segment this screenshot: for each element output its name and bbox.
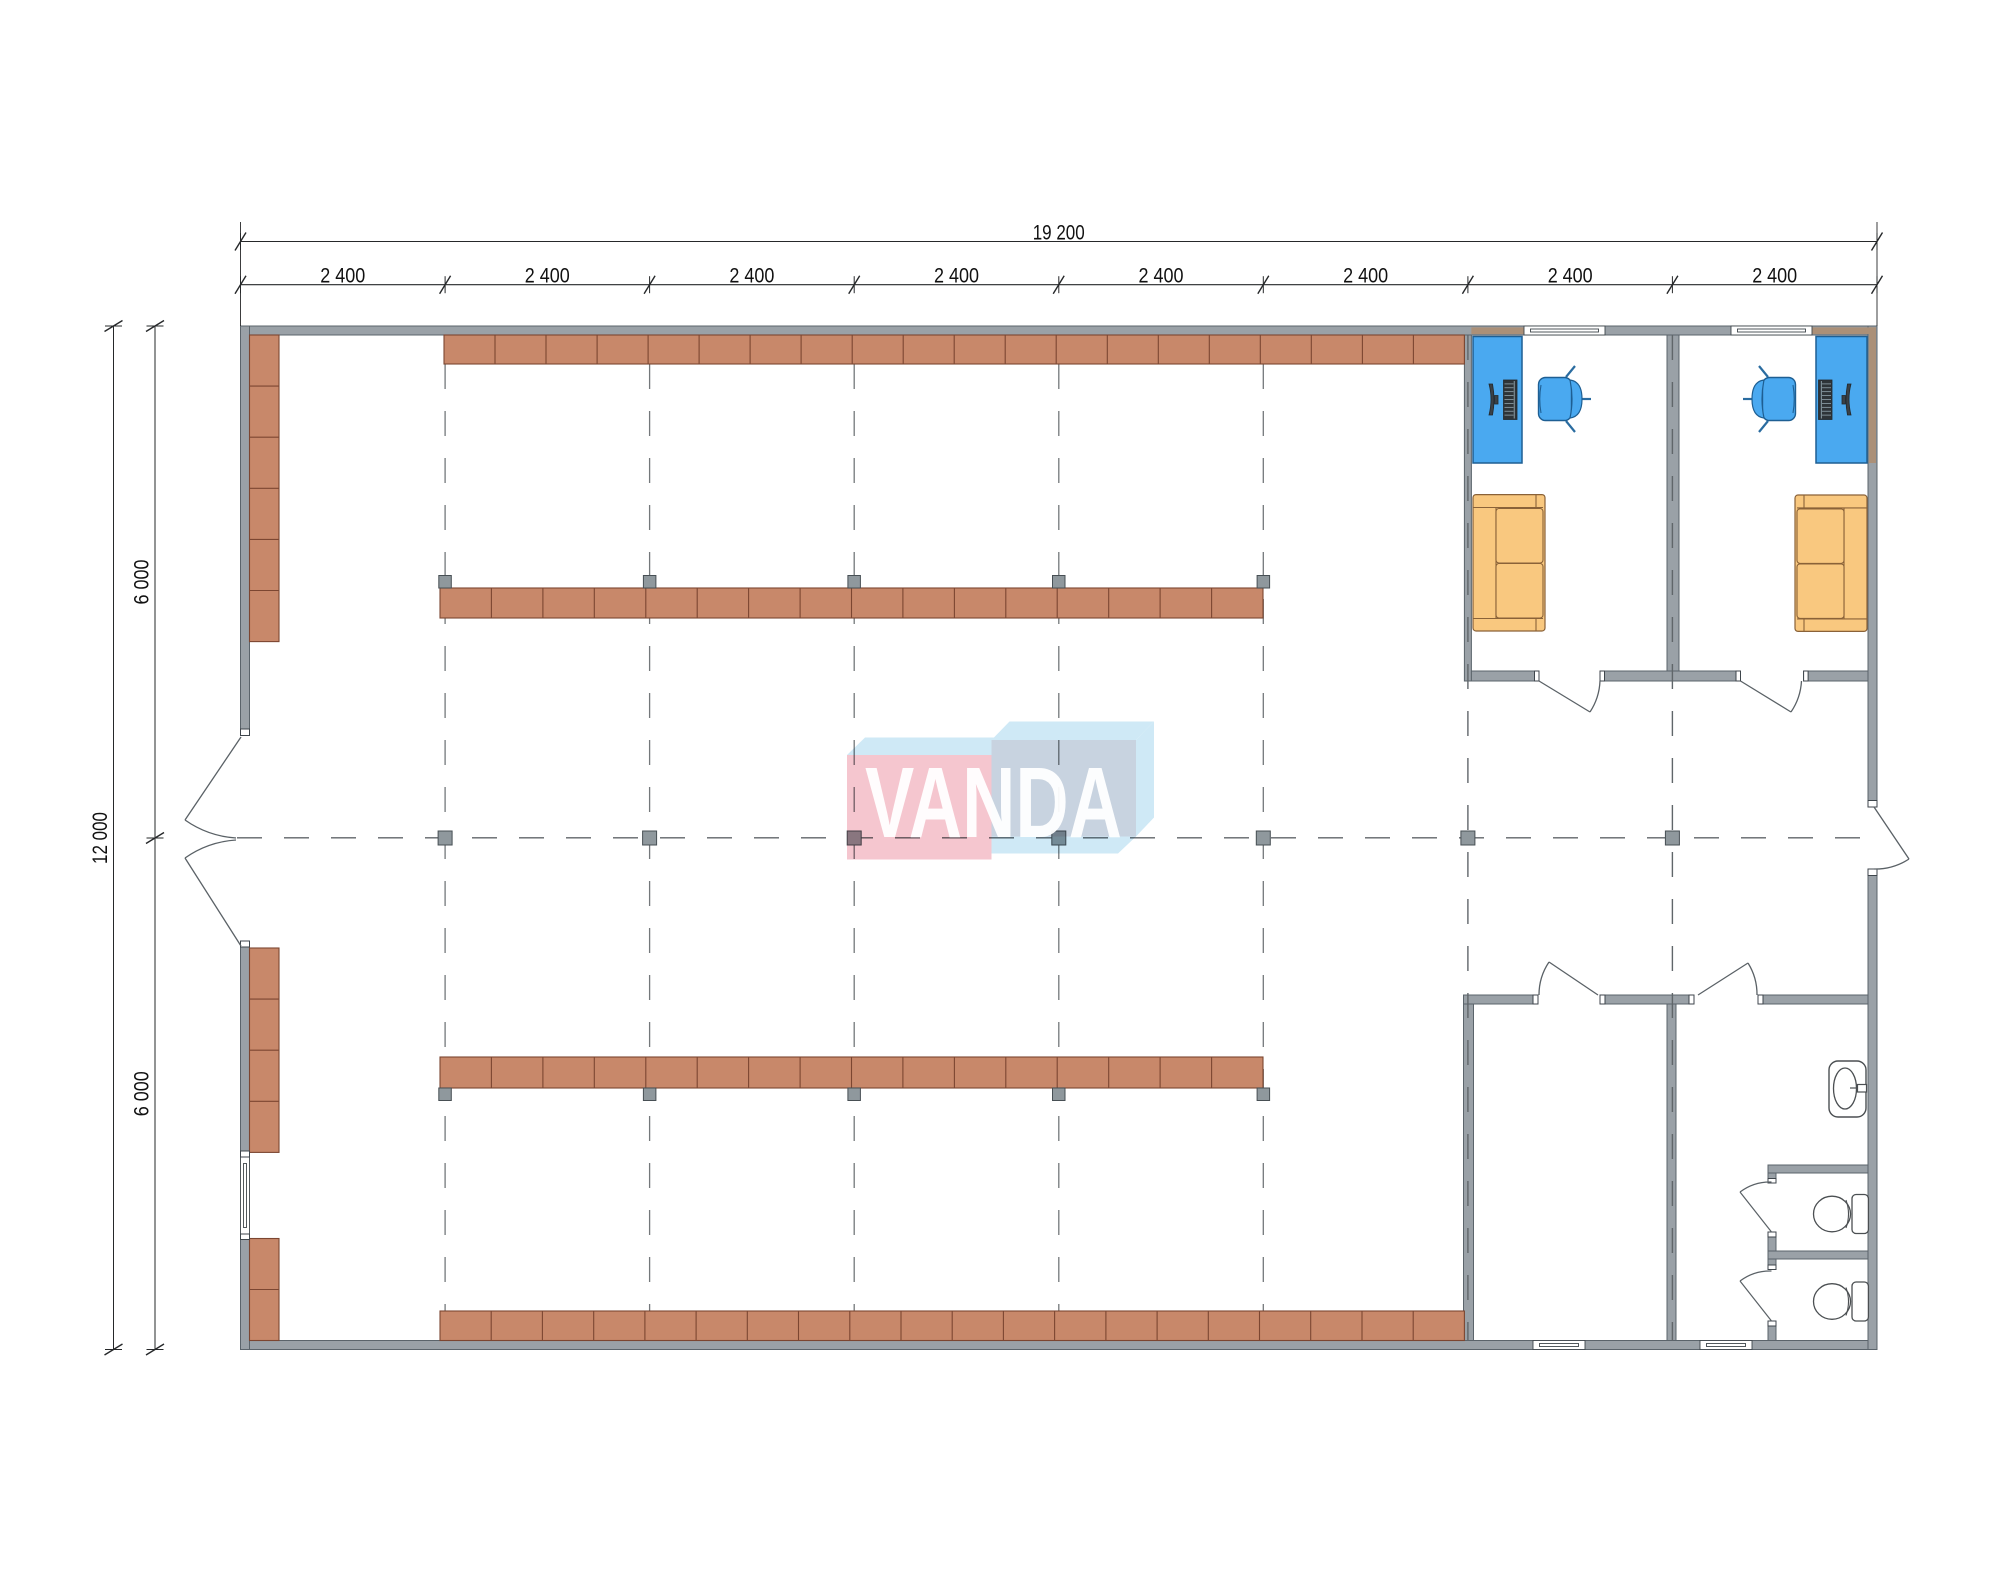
- svg-text:6 000: 6 000: [131, 1071, 154, 1116]
- svg-text:19 200: 19 200: [1033, 222, 1085, 245]
- svg-text:2 400: 2 400: [525, 265, 570, 288]
- svg-text:2 400: 2 400: [1139, 265, 1184, 288]
- svg-text:2 400: 2 400: [729, 265, 774, 288]
- svg-text:2 400: 2 400: [1752, 265, 1797, 288]
- svg-text:VANDA: VANDA: [865, 747, 1122, 859]
- svg-text:6 000: 6 000: [131, 560, 154, 605]
- svg-text:2 400: 2 400: [1548, 265, 1593, 288]
- svg-text:12 000: 12 000: [89, 812, 112, 864]
- svg-text:2 400: 2 400: [320, 265, 365, 288]
- svg-text:2 400: 2 400: [934, 265, 979, 288]
- svg-text:2 400: 2 400: [1343, 265, 1388, 288]
